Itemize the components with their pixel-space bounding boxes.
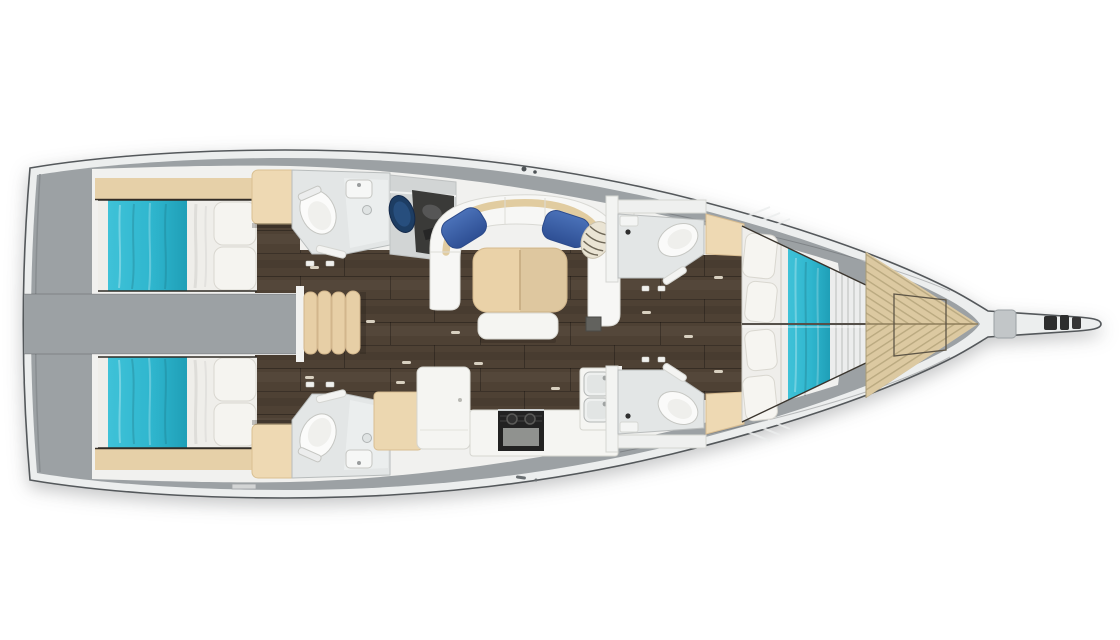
yacht-floor-plan-canvas [0, 0, 1120, 640]
aft-head-port [292, 170, 390, 259]
pillow [744, 329, 778, 372]
footstool-bench [478, 313, 558, 339]
anchor-fitting [1072, 317, 1081, 329]
anchor-fitting [1044, 316, 1057, 330]
companionway-steps [304, 291, 366, 354]
foredeck [866, 252, 978, 398]
galley-island [417, 367, 470, 449]
stern-step-notch [232, 484, 256, 489]
stove [498, 409, 544, 451]
galley-tan-cabinet [374, 392, 422, 450]
pillow [742, 374, 778, 421]
pillow [744, 281, 778, 324]
bow-fitting [994, 310, 1016, 338]
yacht-floor-plan [0, 0, 1120, 640]
anchor-fitting [1060, 315, 1069, 330]
pillow [742, 232, 778, 279]
floor-hatch-box [586, 317, 601, 331]
cockpit-well [24, 286, 304, 362]
companionway-bulkhead [296, 286, 304, 362]
